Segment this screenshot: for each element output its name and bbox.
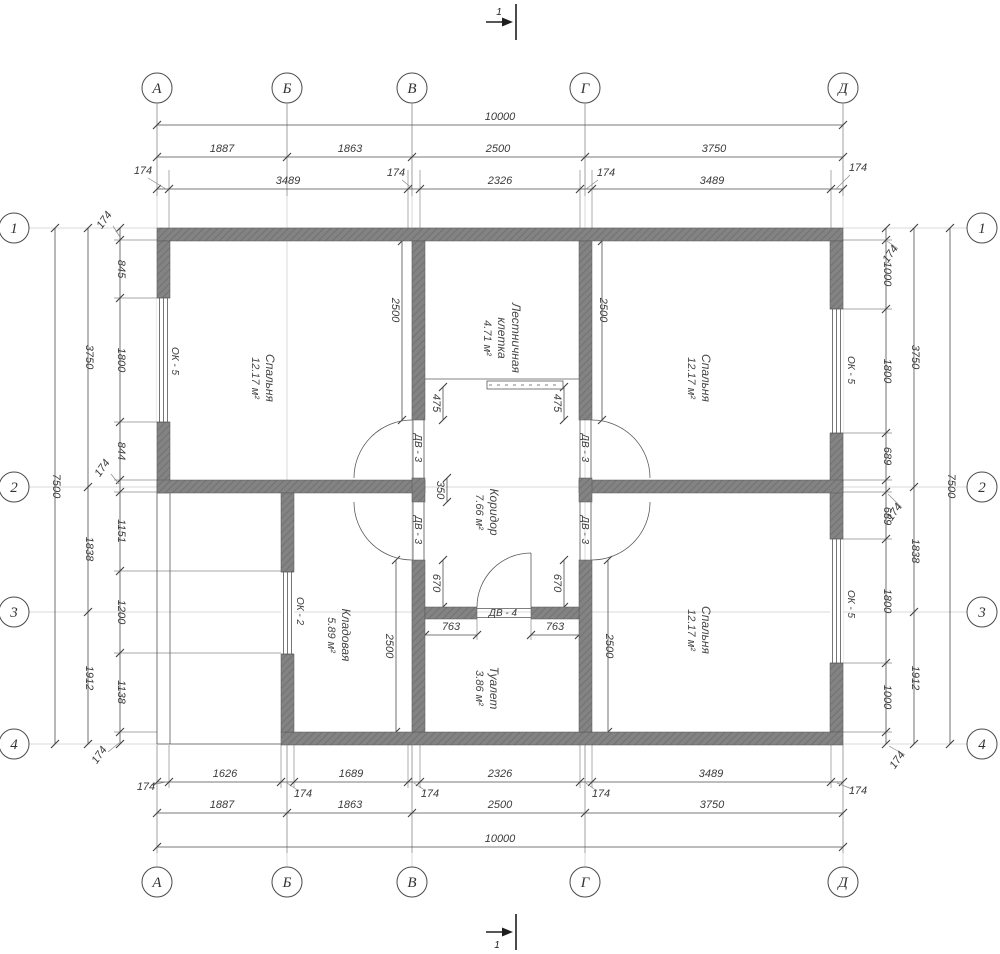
window-ok5-left [157, 298, 170, 422]
dim-label: 670 [551, 574, 563, 593]
door-swing-arc [354, 502, 412, 560]
door-swing-arc [592, 502, 650, 560]
wall-toilet-top-right [531, 607, 579, 619]
room-label-stairwell: Лестничная клетка 4.71 м² [481, 302, 523, 374]
room-name: Кладовая [339, 609, 353, 662]
dim-label: 1689 [339, 768, 363, 780]
wall-axisG-lower [579, 560, 592, 732]
section-label: 1 [494, 940, 500, 951]
dim-label: 689 [881, 507, 893, 525]
axis-bubble-label: 2 [978, 480, 986, 496]
dim-label: 174 [849, 162, 867, 174]
dim-label: 1887 [210, 143, 235, 155]
door-label: ДВ - 3 [579, 515, 590, 545]
axis-bubble-label: Г [580, 875, 591, 891]
dim-label: 1138 [115, 680, 127, 705]
axis-bubble-label: Г [580, 81, 591, 97]
axis-bubble-label: Б [282, 81, 292, 97]
dim-label: 3489 [276, 175, 300, 187]
section-mark-top: 1 [486, 4, 516, 40]
dim-label: 1912 [83, 666, 95, 690]
room-area: 5.89 м² [325, 617, 337, 653]
dim-label: 2500 [389, 297, 401, 323]
section-label: 1 [496, 7, 502, 18]
room-label-toilet: Туалет 3.86 м² [473, 667, 501, 710]
axis-bubble-label: 4 [10, 737, 18, 753]
porch-boundary [157, 493, 281, 744]
floor-plan-svg: 1 1 А Б В Г Д А Б В Г Д 1 2 3 4 1 2 3 4 … [0, 0, 1000, 954]
room-label-bedroom-left: Спальня 12.17 м² [249, 354, 277, 402]
door-swing-arc [354, 420, 412, 478]
room-name: клетка [495, 317, 509, 359]
wall-axisG-upper [579, 241, 592, 420]
axis-bubble-label: В [407, 81, 416, 97]
room-label-storage: Кладовая 5.89 м² [325, 609, 353, 662]
dim-label: 174 [137, 781, 155, 793]
axis-bubble-label: 1 [10, 221, 18, 237]
axis-bubble-label: 2 [10, 480, 18, 496]
dimension-labels-top: 10000 1887 1863 2500 3750 174 3489 174 2… [134, 111, 867, 187]
dim-label: 174 [92, 457, 112, 479]
dim-label: 2326 [487, 175, 513, 187]
dim-label: 1000 [881, 685, 893, 710]
wall-right-1 [830, 241, 843, 309]
room-area: 4.71 м² [481, 320, 493, 356]
section-mark-bottom: 1 [486, 914, 516, 951]
window-ok5-right-top [830, 309, 843, 433]
wall-axisB-mid [412, 478, 425, 502]
dim-label: 7500 [50, 474, 62, 499]
dim-label: 2326 [487, 768, 513, 780]
wall-top [157, 228, 843, 241]
door-label: ДВ - 3 [412, 433, 423, 463]
axis-bubble-label: Б [282, 875, 292, 891]
wall-right-3 [830, 663, 843, 732]
dim-label: 670 [430, 574, 442, 593]
dim-label: 763 [546, 621, 565, 633]
dim-label: 3750 [702, 143, 727, 155]
axis-bubble-label: Д [836, 81, 849, 97]
dim-label: 1000 [881, 262, 893, 287]
dim-label: 1887 [210, 799, 235, 811]
axis-bubble-label: 1 [978, 221, 986, 237]
window-label: ОК - 5 [169, 347, 180, 376]
dim-label: 475 [430, 394, 442, 413]
dim-label: 845 [115, 260, 127, 279]
dim-label: 1626 [213, 768, 238, 780]
wall-axisB-upper [412, 241, 425, 420]
wall-axis2-left [157, 480, 425, 493]
dim-label: 1800 [881, 589, 893, 614]
dim-label: 10000 [485, 833, 516, 845]
door-label: ДВ - 4 [488, 608, 518, 619]
dim-label: 2500 [383, 633, 395, 659]
room-labels: Спальня 12.17 м² Лестничная клетка 4.71 … [249, 302, 713, 709]
wall-toilet-top-left [425, 607, 477, 619]
dim-label: 1912 [909, 666, 921, 690]
dim-label: 10000 [485, 111, 516, 123]
dim-label: 689 [881, 447, 893, 465]
dim-label: 1800 [115, 348, 127, 373]
dim-label: 1151 [115, 519, 127, 543]
dim-label: 174 [597, 167, 615, 179]
window-label: ОК - 5 [845, 590, 856, 619]
axis-bubble-label: 3 [977, 605, 986, 621]
window-label: ОК - 2 [294, 597, 305, 626]
dim-label: 2500 [485, 143, 511, 155]
dim-label: 174 [849, 785, 867, 797]
room-label-bedroom-right-top: Спальня 12.17 м² [685, 354, 713, 402]
dimension-labels-bottom: 174 1626 174 1689 174 2326 174 3489 174 … [137, 768, 867, 845]
room-area: 7.66 м² [473, 494, 485, 530]
wall-axisB-lower [412, 560, 425, 732]
stair-railing [425, 379, 579, 389]
dim-label: 1863 [338, 799, 363, 811]
dim-label: 844 [115, 442, 127, 460]
room-name: Коридор [487, 488, 501, 535]
dim-label: 3489 [700, 175, 724, 187]
axis-bubble-label: 3 [9, 605, 18, 621]
dim-label: 3750 [83, 345, 95, 370]
dim-label: 174 [89, 744, 109, 766]
dim-label: 174 [592, 788, 610, 800]
window-ok2-storage [281, 572, 294, 654]
axis-bubble-label: А [151, 875, 162, 891]
room-name: Спальня [263, 354, 277, 402]
dim-label: 3489 [699, 768, 723, 780]
dim-label: 7500 [945, 474, 957, 499]
room-name: Лестничная [509, 302, 523, 374]
window-ok5-right-bottom [830, 539, 843, 663]
dim-label: 1863 [338, 143, 363, 155]
door-label: ДВ - 3 [412, 515, 423, 545]
room-label-corridor: Коридор 7.66 м² [473, 488, 501, 535]
dim-label: 2500 [487, 799, 513, 811]
wall-storage-west-upper [281, 493, 294, 572]
dim-label: 174 [294, 788, 312, 800]
dim-label: 763 [442, 621, 461, 633]
dim-label: 1838 [83, 537, 95, 562]
wall-storage-west-lower [281, 654, 294, 732]
room-label-bedroom-right-bottom: Спальня 12.17 м² [685, 606, 713, 654]
axis-bubble-label: А [151, 81, 162, 97]
dim-label: 1200 [115, 600, 127, 625]
room-name: Туалет [487, 667, 501, 710]
axis-bubble-label: Д [836, 875, 849, 891]
wall-axisG-mid [579, 478, 592, 502]
dim-label: 2500 [603, 633, 615, 659]
dim-label: 3750 [700, 799, 725, 811]
dim-label: 174 [134, 165, 152, 177]
door-label: ДВ - 3 [579, 433, 590, 463]
room-area: 12.17 м² [685, 609, 697, 651]
floor-plan-drawing: 1 1 А Б В Г Д А Б В Г Д 1 2 3 4 1 2 3 4 … [0, 0, 1000, 954]
dim-label: 2500 [597, 297, 609, 323]
axis-bubble-label: 4 [978, 737, 986, 753]
room-area: 3.86 м² [473, 670, 485, 706]
wall-axis2-right [579, 480, 843, 493]
dim-label: 1800 [881, 359, 893, 384]
wall-bottom [281, 732, 843, 745]
room-area: 12.17 м² [685, 357, 697, 399]
dim-label: 174 [887, 749, 907, 771]
dim-label: 475 [551, 394, 563, 413]
dim-label: 174 [421, 788, 439, 800]
door-swing-arc [592, 420, 650, 478]
window-label: ОК - 5 [845, 356, 856, 385]
dim-label: 174 [387, 167, 405, 179]
room-area: 12.17 м² [249, 357, 261, 399]
dim-label: 350 [434, 481, 446, 500]
wall-left-upper [157, 241, 170, 298]
dim-label: 3750 [909, 345, 921, 370]
room-name: Спальня [699, 606, 713, 654]
doors [354, 420, 650, 618]
axis-bubble-label: В [407, 875, 416, 891]
dimension-labels-left: 7500 3750 1838 1912 174 845 1800 844 174… [50, 209, 127, 766]
room-name: Спальня [699, 354, 713, 402]
dim-label: 1838 [909, 539, 921, 564]
dimension-labels-right: 7500 3750 1838 1912 174 1000 1800 689 17… [880, 243, 957, 771]
